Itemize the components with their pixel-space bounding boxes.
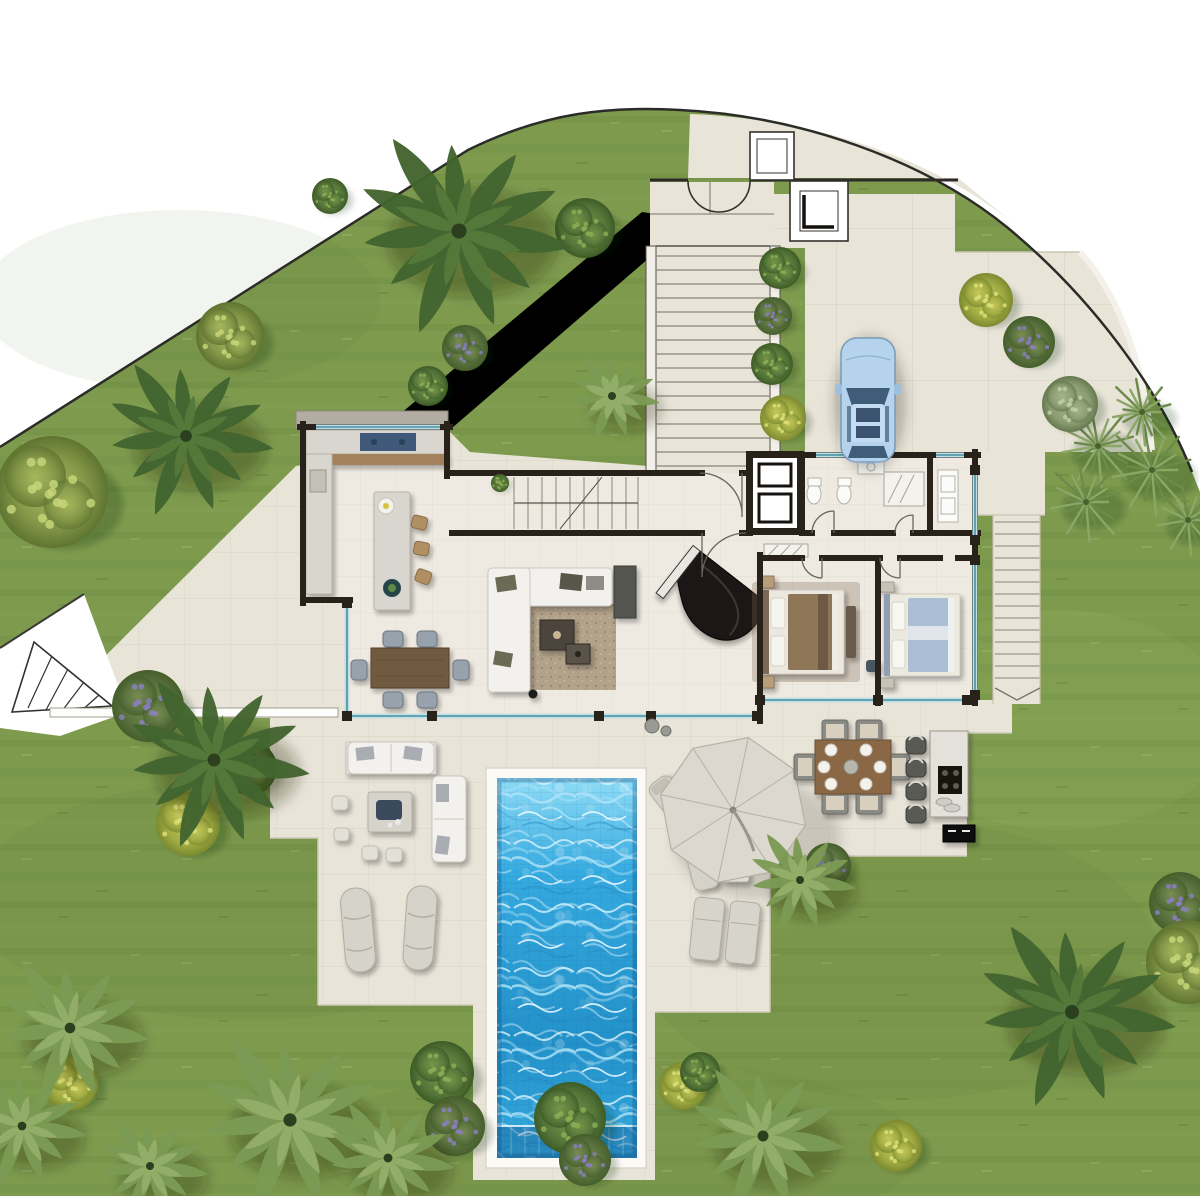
cushion <box>355 746 374 761</box>
table-decor <box>553 631 561 639</box>
media-console <box>614 566 636 618</box>
outdoor-staircase-slab <box>650 182 774 472</box>
nightstand <box>880 678 894 688</box>
windshield <box>846 388 890 406</box>
cushion <box>435 835 450 855</box>
side-mirror <box>894 384 901 395</box>
burner <box>399 439 405 445</box>
elevator <box>746 451 804 535</box>
pillow <box>771 636 785 666</box>
sunroof <box>856 426 880 438</box>
lemon <box>383 503 389 509</box>
closet <box>884 472 924 506</box>
floor-plan-page <box>0 0 1200 1196</box>
rear-window <box>848 446 888 458</box>
bidet-tank <box>838 478 851 486</box>
ottoman <box>334 828 349 841</box>
nightstand <box>880 582 894 592</box>
entry-porch <box>790 181 848 241</box>
bed-fold <box>832 594 838 670</box>
cushion <box>559 573 583 591</box>
side-glass <box>885 406 889 442</box>
kitchen <box>306 430 448 610</box>
barbecue <box>943 825 975 842</box>
table-decor <box>575 651 581 657</box>
terrace-pot <box>661 726 671 736</box>
cushion <box>586 576 604 590</box>
cup <box>388 823 393 828</box>
sun-lounger <box>402 885 438 971</box>
kitchen-sink <box>310 470 326 492</box>
serving-tray <box>376 800 402 820</box>
ottoman <box>332 796 348 810</box>
cushion <box>495 575 517 593</box>
side-mirror <box>835 384 842 395</box>
wood-bar <box>330 454 448 465</box>
ottoman <box>362 846 378 860</box>
indoor-dining-table <box>371 648 449 688</box>
sunroof <box>856 408 880 422</box>
pillow <box>892 602 905 630</box>
side-glass <box>847 406 851 442</box>
burner <box>371 439 377 445</box>
outdoor-cooktop <box>938 766 962 794</box>
duvet <box>788 594 838 670</box>
parked-car <box>834 336 906 472</box>
bed-fold <box>948 598 954 672</box>
bed-runner <box>818 594 828 670</box>
bed-runner <box>908 626 954 640</box>
bidet <box>837 484 851 504</box>
pillow <box>892 640 905 668</box>
cooktop <box>360 433 416 451</box>
floor-plan-canvas <box>0 0 1200 1196</box>
center-dish <box>844 760 858 774</box>
headboard <box>762 590 769 674</box>
cushion <box>403 746 423 761</box>
floor-lamp <box>529 690 538 699</box>
pillow <box>771 598 785 628</box>
plates <box>944 804 960 812</box>
bed-bench <box>846 606 856 658</box>
cup <box>395 819 401 825</box>
bedroom-1 <box>752 576 860 688</box>
headboard <box>884 594 890 676</box>
toilet <box>807 484 821 504</box>
terrace-pot <box>645 719 659 733</box>
stair-rail-left <box>646 246 656 472</box>
toilet-tank <box>808 478 821 486</box>
living-room <box>488 566 636 699</box>
cushion <box>436 784 449 802</box>
salad <box>388 584 396 592</box>
ottoman <box>386 848 402 862</box>
